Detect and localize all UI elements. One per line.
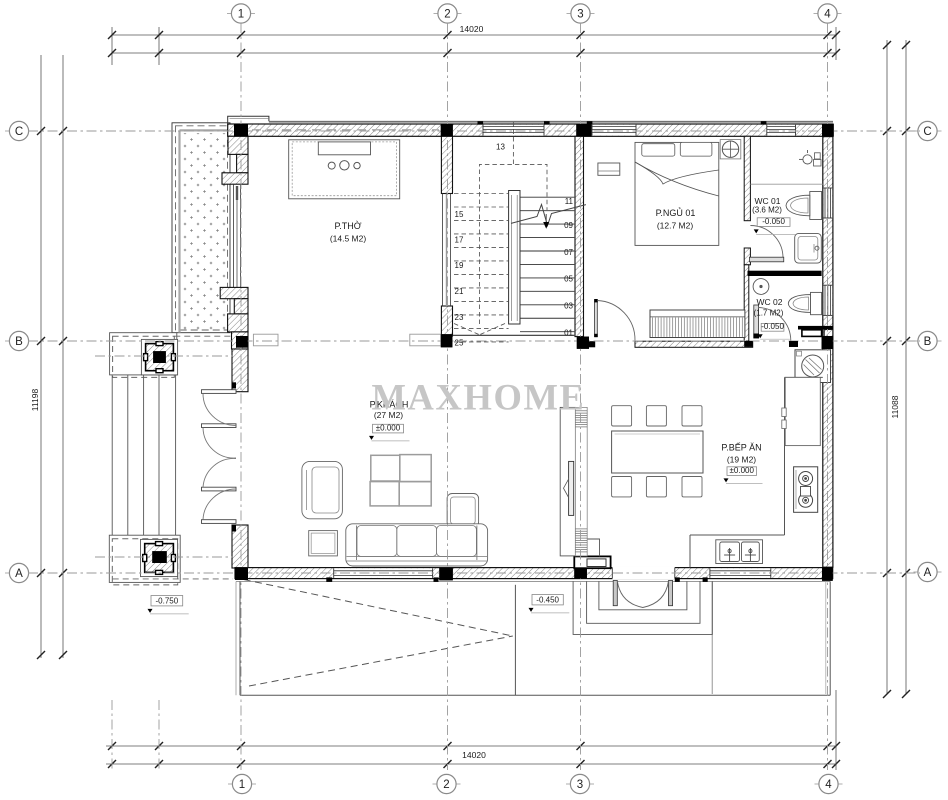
svg-text:01: 01: [564, 329, 573, 338]
svg-text:23: 23: [455, 313, 464, 322]
svg-text:MAXHOME: MAXHOME: [372, 377, 586, 418]
svg-text:(14.5 M2): (14.5 M2): [330, 234, 367, 244]
svg-text:(1.7 M2): (1.7 M2): [754, 309, 784, 318]
svg-text:09: 09: [564, 221, 573, 230]
svg-text:C: C: [923, 126, 931, 138]
svg-text:19: 19: [455, 261, 464, 270]
svg-text:(12.7 M2): (12.7 M2): [657, 221, 694, 231]
svg-text:P.THỜ: P.THỜ: [334, 221, 361, 231]
svg-text:A: A: [15, 568, 23, 580]
svg-text:P.BẾP ĂN: P.BẾP ĂN: [721, 443, 761, 453]
svg-text:P.NGỦ 01: P.NGỦ 01: [656, 207, 696, 218]
svg-text:C: C: [15, 126, 23, 138]
svg-text:3: 3: [577, 779, 583, 791]
svg-text:17: 17: [455, 236, 464, 245]
svg-text:1: 1: [238, 9, 244, 21]
svg-text:4: 4: [825, 779, 832, 791]
svg-text:13: 13: [496, 143, 505, 152]
svg-text:25: 25: [455, 339, 464, 348]
svg-text:2: 2: [443, 779, 449, 791]
svg-text:4: 4: [824, 9, 831, 21]
svg-text:-0.750: -0.750: [156, 597, 179, 606]
svg-text:A: A: [924, 567, 932, 579]
svg-text:05: 05: [564, 275, 573, 284]
svg-text:14020: 14020: [460, 24, 484, 34]
svg-text:14020: 14020: [462, 750, 486, 760]
svg-text:±0.000: ±0.000: [376, 424, 401, 433]
svg-text:11088: 11088: [890, 395, 900, 418]
svg-text:1: 1: [239, 779, 245, 791]
svg-text:WC 01: WC 01: [755, 196, 781, 206]
svg-text:07: 07: [564, 248, 573, 257]
svg-text:15: 15: [455, 210, 464, 219]
svg-text:WC 02: WC 02: [757, 297, 783, 307]
svg-text:2: 2: [444, 9, 450, 21]
svg-text:(19 M2): (19 M2): [727, 455, 756, 465]
svg-text:B: B: [924, 336, 932, 348]
svg-text:(3.6 M2): (3.6 M2): [752, 206, 782, 215]
svg-text:B: B: [15, 336, 23, 348]
svg-text:-0.050: -0.050: [762, 217, 785, 226]
svg-text:11: 11: [565, 197, 574, 206]
svg-text:03: 03: [564, 302, 573, 311]
svg-text:11198: 11198: [30, 389, 40, 412]
svg-text:-0.050: -0.050: [761, 322, 784, 331]
svg-text:±0.000: ±0.000: [730, 466, 755, 475]
svg-text:3: 3: [577, 9, 583, 21]
svg-text:21: 21: [455, 287, 464, 296]
svg-text:-0.450: -0.450: [536, 596, 559, 605]
